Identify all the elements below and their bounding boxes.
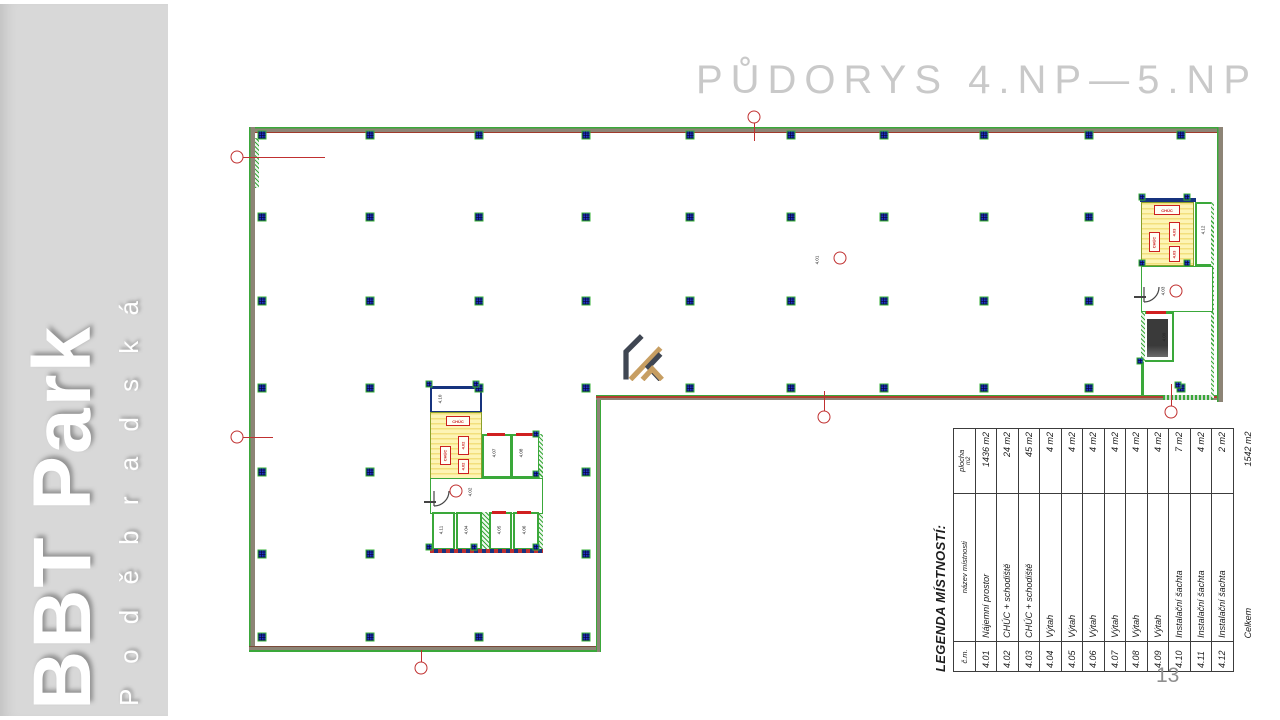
legend-cell: 1436 m2 (975, 429, 997, 494)
column-marker (475, 633, 484, 642)
room-tag-circle (1170, 285, 1183, 298)
column-marker (1085, 384, 1094, 393)
legend-header-row: č.m. název místnosti plocham2 (954, 429, 976, 672)
door-tick (424, 501, 436, 503)
column-marker (880, 131, 889, 140)
room-number-label: 4.01 (815, 256, 820, 265)
legend-cell: 4.05 (1061, 641, 1083, 671)
column-marker (366, 131, 375, 140)
column-marker (1177, 131, 1186, 140)
grid-marker-line (754, 123, 755, 141)
room-number-label: 4.02 (468, 488, 473, 497)
fire-escape-tag-label: CHÚC (452, 419, 464, 424)
column-marker (582, 131, 591, 140)
column-marker (471, 544, 478, 551)
legend-cell: 4 m2 (1083, 429, 1105, 494)
grid-bubble-marker (415, 662, 428, 675)
column-marker (258, 213, 267, 222)
column-marker (533, 471, 540, 478)
column-marker (366, 384, 375, 393)
column-marker (1184, 194, 1191, 201)
legend-cell: CHÚC + schodiště (997, 493, 1019, 641)
legend-row: 4.04Výtah4 m2 (1040, 429, 1062, 672)
fire-escape-tag: 4.03 (1169, 222, 1180, 242)
legend-cell: 45 m2 (1018, 429, 1040, 494)
door-arc (433, 490, 450, 507)
legend-cell: Výtah (1040, 493, 1062, 641)
legend-cell: 4.08 (1126, 641, 1148, 671)
column-marker (686, 297, 695, 306)
column-marker (366, 468, 375, 477)
legend-title: LEGENDA MÍSTNOSTÍ: (933, 428, 948, 672)
column-marker (787, 213, 796, 222)
column-marker (426, 544, 433, 551)
legend-cell: 4 m2 (1190, 429, 1212, 494)
fire-escape-tag: 4.02 (458, 459, 469, 474)
column-marker (366, 297, 375, 306)
column-marker (475, 213, 484, 222)
legend-cell: CHÚC + schodiště (1018, 493, 1040, 641)
core-wall-hatch (482, 512, 489, 550)
column-marker (980, 131, 989, 140)
wall-bottom-right (596, 395, 1223, 400)
legend-cell: 4.07 (1104, 641, 1126, 671)
legend-total-area: 1542 m2 (1233, 429, 1258, 494)
legend-header-area: plocham2 (954, 429, 976, 494)
column-marker (533, 544, 540, 551)
door-arc (1143, 286, 1160, 303)
fire-escape-tag: CHÚC (1149, 232, 1160, 252)
column-marker (686, 131, 695, 140)
room-number-label: 4.05 (497, 526, 502, 535)
legend-row: 4.06Výtah4 m2 (1083, 429, 1105, 672)
grid-marker-line (243, 437, 273, 438)
legend-cell: 4.12 (1212, 641, 1234, 671)
wall-left (249, 127, 255, 652)
legend: LEGENDA MÍSTNOSTÍ: č.m. název místnosti … (933, 428, 1259, 672)
column-marker (1184, 260, 1191, 267)
elevator-407 (482, 434, 512, 478)
elevator-door (492, 511, 506, 514)
legend-row: 4.12Instalační šachta2 m2 (1212, 429, 1234, 672)
room-tag-circle (450, 485, 463, 498)
legend-total-label: Celkem (1233, 493, 1258, 641)
column-marker (1139, 260, 1146, 267)
column-marker (366, 633, 375, 642)
grid-marker-line (243, 157, 325, 158)
column-marker (880, 213, 889, 222)
room-number-label: 4.08 (519, 449, 524, 458)
column-marker (258, 297, 267, 306)
legend-cell: Výtah (1126, 493, 1148, 641)
column-marker (582, 213, 591, 222)
legend-cell: 4.01 (975, 641, 997, 671)
grid-bubble-marker (818, 411, 831, 424)
column-marker (475, 131, 484, 140)
wall-inner-vertical (596, 398, 601, 652)
legend-cell: Výtah (1083, 493, 1105, 641)
core-wall (430, 549, 543, 553)
wall-right (1217, 127, 1223, 402)
legend-cell: 4.11 (1190, 641, 1212, 671)
kaprain-logo (617, 333, 665, 381)
fire-escape-tag-label: CHÚC (1152, 236, 1157, 248)
column-marker (533, 431, 540, 438)
legend-cell: 4.04 (1040, 641, 1062, 671)
room-number-label: 4.03 (1161, 287, 1166, 296)
column-marker (787, 131, 796, 140)
column-marker (582, 384, 591, 393)
column-marker (787, 384, 796, 393)
elevator-door (487, 433, 505, 436)
legend-cell: 7 m2 (1169, 429, 1191, 494)
legend-cell: Nájemní prostor (975, 493, 997, 641)
legend-row: 4.07Výtah4 m2 (1104, 429, 1126, 672)
slide: BBT Park P o d ě b r a d s k á PŮDORYS 4… (0, 0, 1280, 720)
legend-cell: Výtah (1104, 493, 1126, 641)
legend-row: 4.01Nájemní prostor1436 m2 (975, 429, 997, 672)
column-marker (258, 384, 267, 393)
room-number-label: 4.10 (438, 395, 443, 404)
column-marker (582, 550, 591, 559)
room-number-label: 4.04 (464, 526, 469, 535)
legend-row: 4.02CHÚC + schodiště24 m2 (997, 429, 1019, 672)
legend-cell: 4.03 (1018, 641, 1040, 671)
column-marker (787, 297, 796, 306)
core-wall-hatch (1141, 312, 1145, 362)
legend-cell: 4 m2 (1061, 429, 1083, 494)
column-marker (366, 550, 375, 559)
column-marker (366, 213, 375, 222)
legend-row: 4.11Instalační šachta4 m2 (1190, 429, 1212, 672)
column-marker (258, 131, 267, 140)
legend-cell: Výtah (1147, 493, 1169, 641)
legend-header-name: název místnosti (954, 493, 976, 641)
legend-cell: 24 m2 (997, 429, 1019, 494)
elevator-door (1146, 311, 1166, 314)
grid-marker-line (1171, 384, 1172, 406)
legend-cell: 4.06 (1083, 641, 1105, 671)
legend-cell: Instalační šachta (1212, 493, 1234, 641)
fire-escape-tag-label: 4.02 (460, 441, 465, 449)
legend-cell: 2 m2 (1212, 429, 1234, 494)
column-marker (582, 468, 591, 477)
fire-escape-tag: CHÚC (440, 446, 451, 465)
elevator-404 (456, 512, 482, 550)
grid-bubble-marker (231, 151, 244, 164)
column-marker (1139, 194, 1146, 201)
fire-escape-tag-label: 4.02 (460, 462, 465, 470)
wall-hatch (255, 138, 259, 188)
legend-total-row: Celkem 1542 m2 (1233, 429, 1258, 672)
column-marker (582, 633, 591, 642)
grid-bubble-marker (231, 431, 244, 444)
room-number-label: 4.12 (1201, 226, 1206, 235)
wall-top (249, 127, 1223, 133)
legend-cell: 4 m2 (1040, 429, 1062, 494)
column-marker (686, 213, 695, 222)
fire-escape-tag-label: CHÚC (1161, 208, 1173, 213)
legend-cell: 4.02 (997, 641, 1019, 671)
grid-bubble-marker (748, 111, 761, 124)
column-marker (980, 297, 989, 306)
legend-cell: 4 m2 (1126, 429, 1148, 494)
room-number-label: 4.09 (1162, 333, 1167, 342)
page-number: 13 (1156, 664, 1179, 688)
column-marker (582, 297, 591, 306)
column-marker (880, 297, 889, 306)
grid-marker-line (824, 391, 825, 411)
legend-cell: 4 m2 (1104, 429, 1126, 494)
column-marker (880, 384, 889, 393)
column-marker (1175, 382, 1182, 389)
grid-marker-line (421, 650, 422, 662)
legend-header-num: č.m. (954, 641, 976, 671)
fire-escape-tag-label: 4.03 (1171, 250, 1176, 258)
column-marker (258, 468, 267, 477)
elevator-door (516, 433, 534, 436)
door-tick (1134, 296, 1146, 298)
column-marker (1085, 213, 1094, 222)
wall-bottom-left (249, 646, 601, 652)
fire-escape-tag: CHÚC (1154, 205, 1180, 215)
room-tag-circle (834, 252, 847, 265)
room-number-label: 4.06 (522, 526, 527, 535)
fire-escape-tag: 4.03 (1169, 246, 1180, 262)
column-marker (473, 381, 480, 388)
legend-cell: Instalační šachta (1190, 493, 1212, 641)
legend-row: 4.03CHÚC + schodiště45 m2 (1018, 429, 1040, 672)
grid-bubble-marker (1165, 406, 1178, 419)
legend-row: 4.09Výtah4 m2 (1147, 429, 1169, 672)
legend-cell: 4 m2 (1147, 429, 1169, 494)
column-marker (980, 384, 989, 393)
column-marker (426, 381, 433, 388)
room-number-label: 4.11 (439, 526, 444, 534)
fire-escape-tag-label: 4.03 (1171, 228, 1176, 236)
room-number-label: 4.07 (492, 449, 497, 458)
fire-escape-tag-label: CHÚC (443, 449, 448, 461)
column-marker (1137, 358, 1144, 365)
elevator-door (517, 511, 531, 514)
column-marker (258, 633, 267, 642)
column-marker (1085, 297, 1094, 306)
column-marker (980, 213, 989, 222)
column-marker (258, 550, 267, 559)
legend-cell: Výtah (1061, 493, 1083, 641)
legend-row: 4.05Výtah4 m2 (1061, 429, 1083, 672)
fire-escape-tag: CHÚC (446, 416, 470, 426)
legend-row: 4.08Výtah4 m2 (1126, 429, 1148, 672)
legend-row: 4.10Instalační šachta7 m2 (1169, 429, 1191, 672)
column-marker (686, 384, 695, 393)
column-marker (475, 297, 484, 306)
legend-cell: Instalační šachta (1169, 493, 1191, 641)
fire-escape-tag: 4.02 (458, 436, 469, 455)
core-wall (1141, 362, 1144, 396)
column-marker (1085, 131, 1094, 140)
room-shaft-411 (432, 512, 455, 550)
legend-table: č.m. název místnosti plocham2 4.01Nájemn… (953, 428, 1258, 672)
